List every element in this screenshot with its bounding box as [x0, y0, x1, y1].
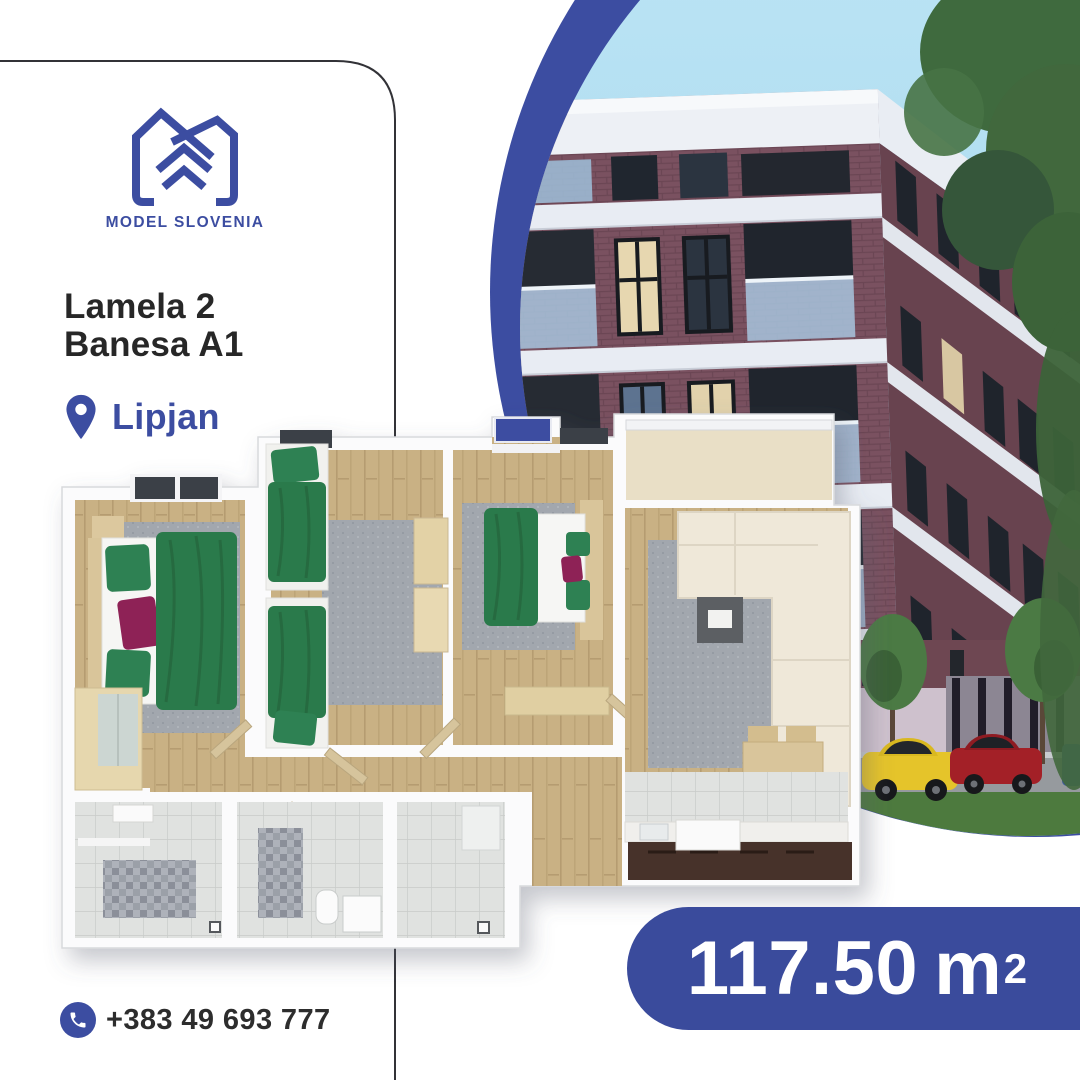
living-room	[625, 508, 852, 880]
area-exponent: 2	[1004, 945, 1027, 993]
phone-icon	[60, 1002, 96, 1038]
location-row: Lipjan	[62, 392, 220, 442]
phone-number: +383 49 693 777	[106, 1004, 331, 1037]
wardrobe	[75, 688, 142, 790]
area-pill: 117.50 m2	[627, 907, 1080, 1030]
coffee-table	[697, 597, 743, 643]
brand-logo: MODEL SLOVENIA	[100, 90, 270, 232]
entry-door	[492, 418, 560, 453]
area-unit: m	[934, 925, 1002, 1012]
terrace	[626, 420, 832, 500]
bathroom-3	[397, 802, 505, 938]
area-value: 117.50	[687, 925, 918, 1012]
listing-title: Lamela 2 Banesa A1	[64, 288, 243, 364]
bedroom-1	[75, 474, 245, 790]
house-logo-icon	[120, 90, 250, 212]
dresser	[505, 687, 609, 715]
listing-unit: Banesa A1	[64, 326, 243, 364]
phone-row: +383 49 693 777	[60, 1002, 331, 1038]
location-pin-icon	[62, 392, 100, 442]
double-bed	[484, 500, 603, 640]
bedroom-3	[453, 418, 613, 745]
bedroom-2	[266, 430, 448, 748]
kitchen	[625, 772, 852, 880]
floor-plan	[62, 414, 860, 948]
real-estate-flyer: MODEL SLOVENIA Lamela 2 Banesa A1 Lipjan…	[0, 0, 1080, 1080]
brand-name: MODEL SLOVENIA	[100, 214, 270, 232]
single-bed-bottom	[266, 598, 328, 748]
listing-block: Lamela 2	[64, 288, 243, 326]
location-label: Lipjan	[112, 396, 220, 438]
bathroom-2	[237, 802, 383, 938]
bathroom-1	[75, 802, 222, 938]
single-bed-top	[266, 444, 328, 590]
